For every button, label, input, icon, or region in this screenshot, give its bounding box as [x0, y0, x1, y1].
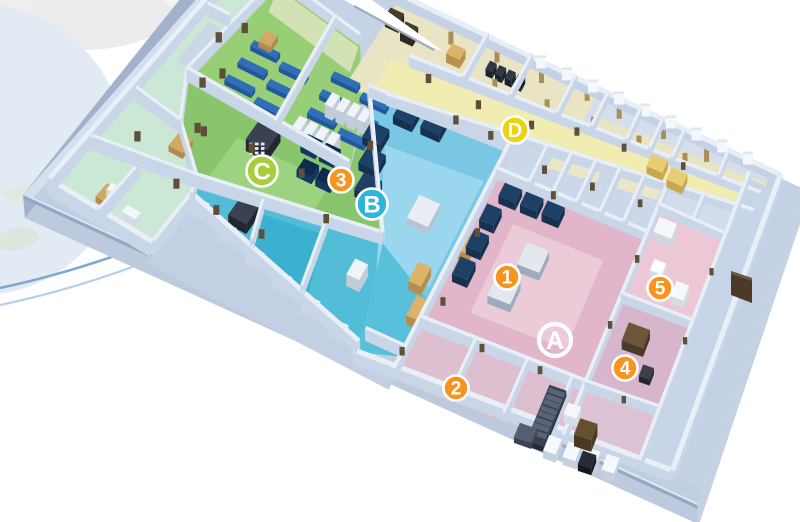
svg-text:4: 4	[620, 359, 631, 380]
svg-text:1: 1	[502, 268, 513, 289]
svg-text:2: 2	[451, 379, 462, 400]
svg-text:A: A	[546, 327, 564, 355]
svg-text:5: 5	[655, 279, 666, 300]
svg-text:B: B	[363, 192, 380, 219]
svg-text:3: 3	[336, 171, 347, 192]
svg-text:D: D	[508, 120, 522, 142]
svg-text:C: C	[253, 159, 270, 186]
